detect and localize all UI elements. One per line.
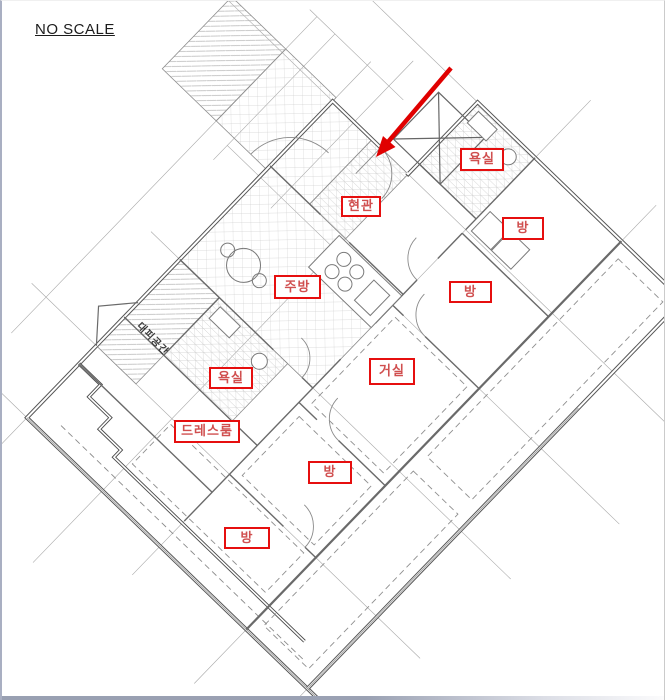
label-bathroom-top: 욕실 [460,148,504,171]
building-group [2,1,665,700]
label-bedroom-1: 방 [502,217,544,240]
label-dress-room: 드레스룸 [174,420,240,443]
label-bathroom-left: 욕실 [209,367,253,389]
label-living-room: 거실 [369,358,415,385]
label-kitchen: 주방 [274,275,321,299]
floor-hatches [2,1,535,474]
balcony-dashed [115,115,663,669]
label-entrance: 현관 [341,196,381,217]
floor-plan-drawing [2,1,665,700]
label-bedroom-2: 방 [449,281,492,303]
floor-plan-image: NO SCALE [0,0,665,700]
label-bedroom-4: 방 [224,527,270,549]
label-bedroom-3: 방 [308,461,352,484]
bottom-border-bar [2,696,664,700]
